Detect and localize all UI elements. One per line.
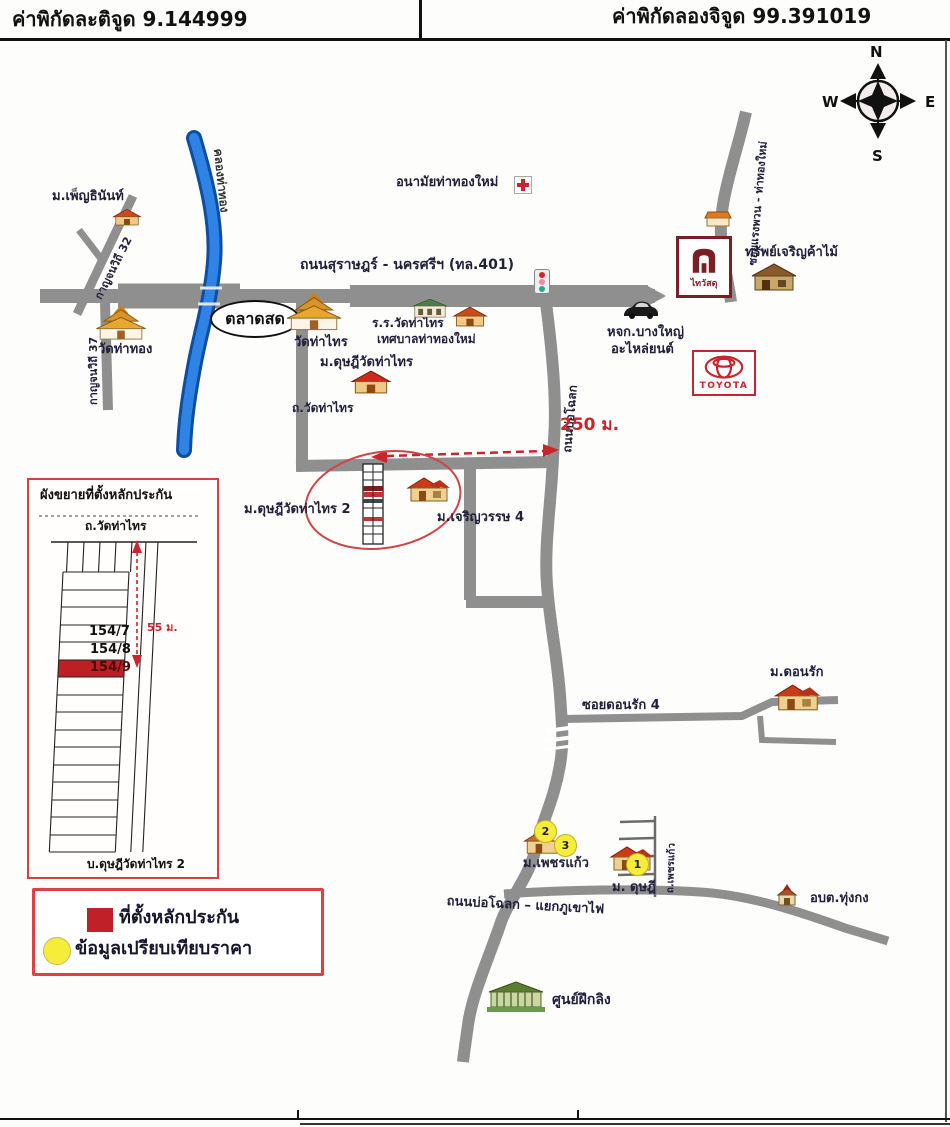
school-building-icon (412, 297, 448, 322)
distance-250m-label: 250 ม. (560, 416, 619, 436)
bangyai-label-line2: อะไหล่ยนต์ (611, 343, 674, 358)
phetkaew-road-label: ถ.เพชรแก้ว (665, 843, 678, 894)
shop-icon (704, 210, 732, 228)
health-cross-icon (514, 176, 532, 194)
wat-tha-thong-label: วัดท่าทอง (98, 343, 152, 358)
house-icon-phenthinan (112, 208, 142, 227)
temple-icon-wat-tha-thong (92, 305, 150, 341)
sap-charoen-label: ทรัพย์เจริญค้าไม้ (745, 246, 838, 261)
house-icon-school-area (452, 306, 488, 328)
monkey-center-label: ศูนย์ฝึกลิง (552, 992, 611, 1008)
comparison-marker-2: 2 (534, 820, 557, 843)
market-label: ตลาดสด (225, 307, 285, 332)
thaiwatsadu-arch-icon (687, 244, 721, 276)
warehouse-icon-monkey-center (487, 980, 545, 1014)
wat-tha-sai-road-label: ถ.วัดท่าไทร (292, 402, 353, 416)
government-building-icon-obt (772, 884, 802, 908)
marker-2-number: 2 (542, 825, 550, 838)
marker-1-number: 1 (634, 858, 642, 871)
bangyai-label-line1: หจก.บางใหญ่ (607, 326, 684, 341)
toyota-label: TOYOTA (700, 381, 749, 391)
anamai-label: อนามัยท่าทองใหม่ (396, 176, 498, 191)
traffic-light-icon (534, 269, 550, 294)
phetkaew-label: ม.เพชรแก้ว (523, 857, 589, 872)
legend-collateral-swatch (87, 908, 113, 932)
wat-tha-sai-label: วัดท่าไทร (294, 336, 348, 351)
dusadee2-label: ม.ดุษฎีวัดท่าไทร 2 (244, 503, 351, 518)
car-icon (622, 300, 660, 320)
thaiwatsadu-label: ไทวัสดุ (691, 276, 718, 290)
thaiwatsadu-logo: ไทวัสดุ (676, 236, 732, 298)
legend-comparison-swatch (43, 937, 71, 965)
inset-55m-label: 55 ม. (147, 622, 178, 635)
comparison-marker-1: 1 (626, 853, 649, 876)
temple-icon-wat-tha-sai (283, 292, 345, 332)
inset-plot-diagram: ผังขยายที่ตั้งหลักประกัน ถ.วัดท่าไทร (27, 478, 219, 879)
inset-bottom-label: บ.ดุษฎีวัดท่าไทร 2 (87, 858, 185, 872)
house-icon-dusadee1 (350, 370, 392, 395)
legend-box: ที่ตั้งหลักประกัน ข้อมูลเปรียบเทียบราคา (32, 888, 324, 976)
school-label-line2: เทศบาลท่าทองใหม่ (377, 333, 476, 347)
dusadee1-label: ม.ดุษฎีวัดท่าไทร (320, 356, 413, 371)
toyota-sign: TOYOTA (692, 350, 756, 396)
legend-comparison-label: ข้อมูลเปรียบเทียบราคา (75, 939, 252, 960)
obt-label: อบต.ทุ่งกง (810, 892, 869, 907)
dusadee-main-label: ม. ดุษฎี (612, 881, 656, 896)
house-icon-in-ellipse (406, 476, 452, 504)
house-icon-sap-charoen (750, 262, 798, 294)
soi-donrak-label: ซอยดอนรัก 4 (582, 699, 660, 714)
inset-plot-grid (29, 480, 213, 873)
inset-plot-154-7: 154/7 (89, 625, 130, 640)
inset-plot-154-9: 154/9 (90, 661, 131, 676)
map-page: ค่าพิกัดละติจูด 9.144999 ค่าพิกัดลองจิจู… (0, 0, 950, 1127)
donrak-label: ม.ดอนรัก (770, 666, 824, 681)
inset-plot-154-8: 154/8 (90, 643, 131, 658)
phenthinan-label: ม.เพ็ญธินันท์ (52, 190, 124, 205)
toyota-logo-icon (702, 355, 746, 381)
house-icon-donrak (773, 683, 823, 713)
marker-3-number: 3 (562, 839, 570, 852)
legend-collateral-label: ที่ตั้งหลักประกัน (119, 908, 239, 929)
charoenwat-label: ม.เจริญวรรษ 4 (437, 511, 524, 526)
highway401-label: ถนนสุราษฎร์ - นครศรีฯ (ทล.401) (300, 257, 514, 273)
comparison-marker-3: 3 (554, 834, 577, 857)
